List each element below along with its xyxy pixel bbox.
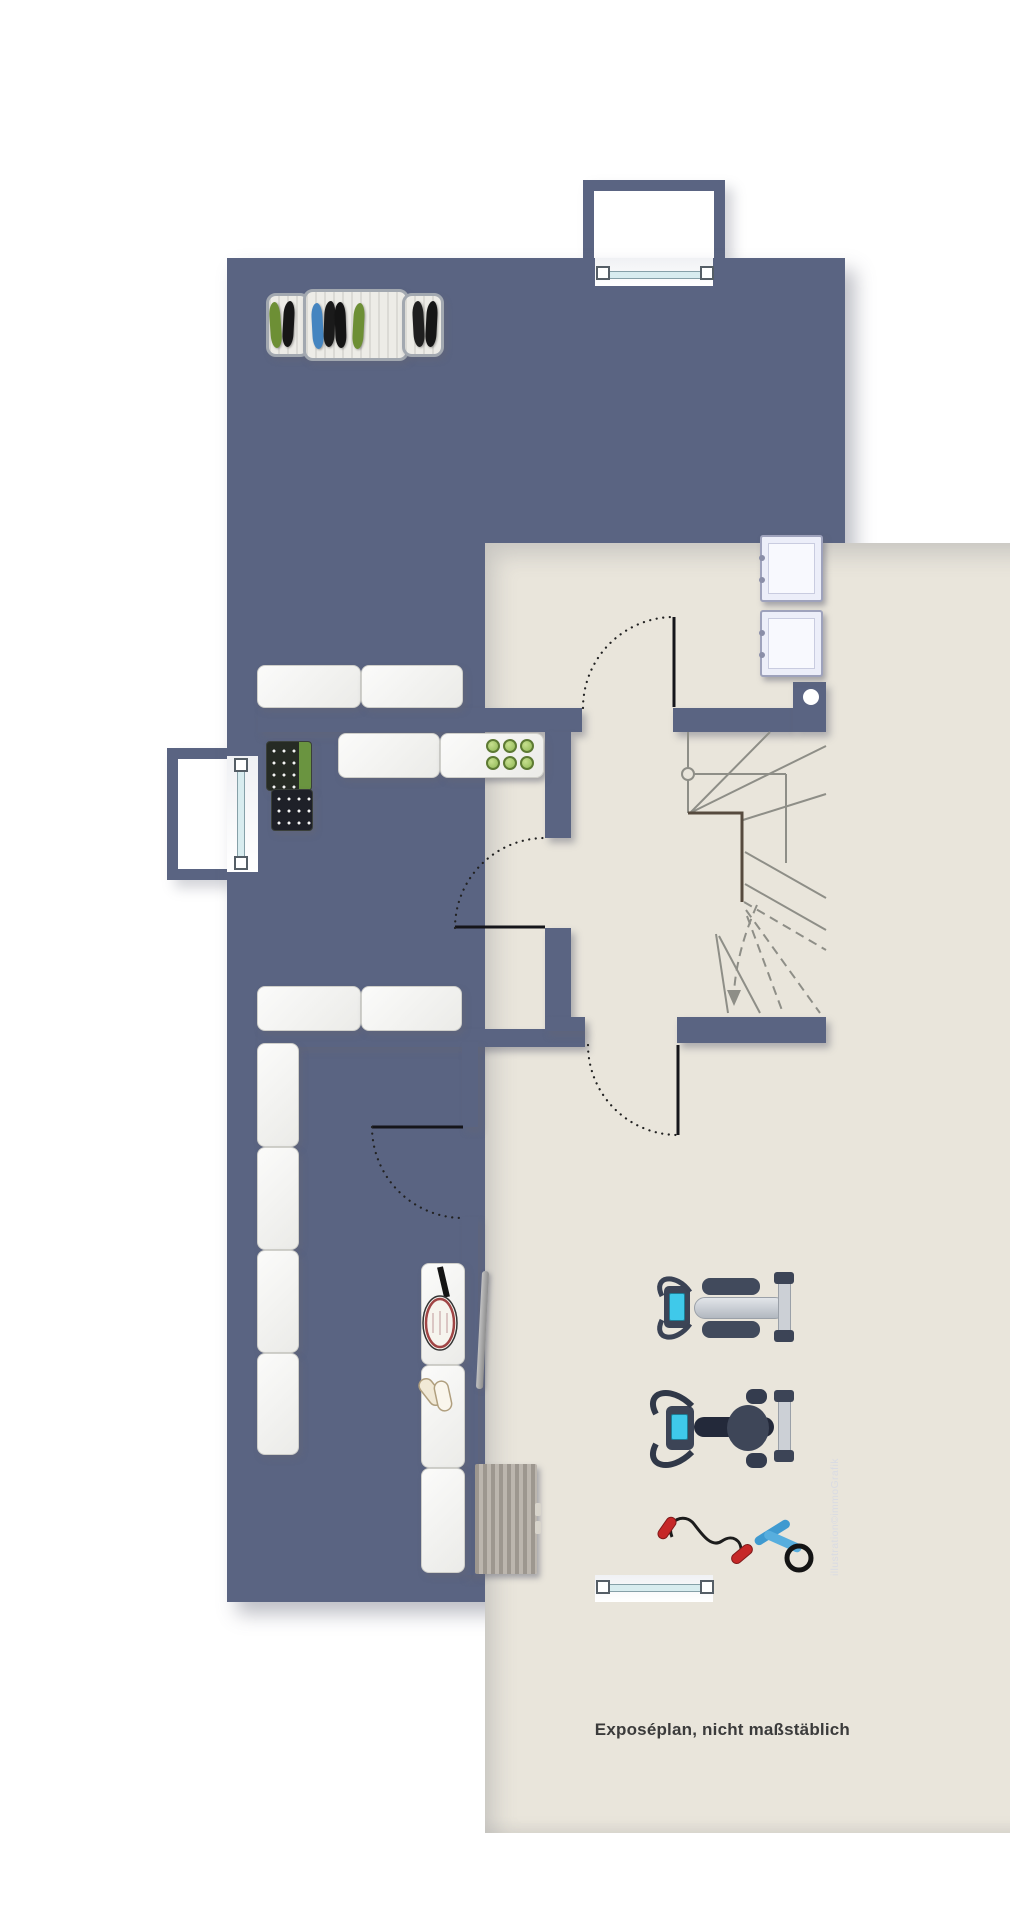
plan-caption: Exposéplan, nicht maßstäblich — [560, 1720, 850, 1740]
wall-top-room-a2 — [673, 708, 793, 732]
bike-pedal-bottom — [746, 1453, 767, 1468]
wall-middle-room-bottom — [258, 1029, 585, 1047]
mat-tab — [535, 1521, 541, 1534]
bench-box-racket — [421, 1263, 465, 1365]
bottom-door-jamb-left — [596, 1580, 610, 1594]
preserving-jar — [520, 739, 534, 753]
rower-rail — [694, 1297, 786, 1319]
bench-box — [421, 1468, 465, 1573]
bike-foot-cap — [774, 1450, 794, 1462]
bike-saddle — [727, 1405, 769, 1451]
bike-pedal-top — [746, 1389, 767, 1404]
preserving-jar — [520, 756, 534, 770]
dryer — [760, 610, 823, 677]
floor-drain-dot — [803, 689, 819, 705]
preserving-jar — [486, 756, 500, 770]
illustrator-watermark: illustration©immoGrafik — [829, 1426, 841, 1576]
bottle-crate-bottom — [271, 789, 313, 831]
bike-screen — [671, 1414, 688, 1440]
top-door-jamb-left — [596, 266, 610, 280]
top-door-jamb-right — [700, 266, 714, 280]
preserving-jar — [503, 756, 517, 770]
shelf-box — [338, 733, 440, 778]
wall-stub-lower — [545, 928, 571, 1018]
bottom-door-jamb-right — [700, 1580, 714, 1594]
shelf-box — [257, 986, 361, 1031]
light-well-left — [167, 748, 227, 880]
rower-foot-cap — [774, 1272, 794, 1284]
preserving-jar — [486, 739, 500, 753]
shoe-black — [334, 302, 347, 348]
light-well-top — [583, 180, 725, 258]
shelf-column-box — [257, 1147, 299, 1250]
shelf-column-box — [257, 1250, 299, 1353]
wall-top-room-a1 — [258, 708, 582, 732]
rower-foot-cap — [774, 1330, 794, 1342]
left-window-jamb-top — [234, 758, 248, 772]
wall-junction-block — [545, 1017, 585, 1031]
shelf-box — [361, 986, 462, 1031]
shelf-box — [257, 665, 361, 708]
wall-divider-upper — [462, 1042, 478, 1127]
rower-pad-bottom — [702, 1321, 760, 1338]
bottom-exit-door-glass — [599, 1584, 709, 1592]
bike-foot-cap — [774, 1390, 794, 1402]
rower-screen — [669, 1293, 685, 1321]
preserving-jar — [503, 739, 517, 753]
mat-tab — [535, 1503, 541, 1516]
wall-stub-upper — [545, 732, 571, 838]
shelf-box — [361, 665, 463, 708]
rower-pad-top — [702, 1278, 760, 1295]
bottle-crate-top — [266, 741, 312, 791]
gym-mat — [475, 1464, 537, 1574]
bench-box-shoes — [421, 1365, 465, 1468]
shelf-column-box — [257, 1353, 299, 1455]
shelf-column-box — [257, 1043, 299, 1147]
top-entry-door-glass — [599, 271, 709, 279]
left-window-glass — [237, 766, 245, 862]
washing-machine — [760, 535, 823, 602]
wall-stairhall-bottom — [677, 1017, 826, 1043]
floor-plan-page: illustration©immoGrafik Exposéplan, nich… — [0, 0, 1010, 1920]
left-window-jamb-bottom — [234, 856, 248, 870]
